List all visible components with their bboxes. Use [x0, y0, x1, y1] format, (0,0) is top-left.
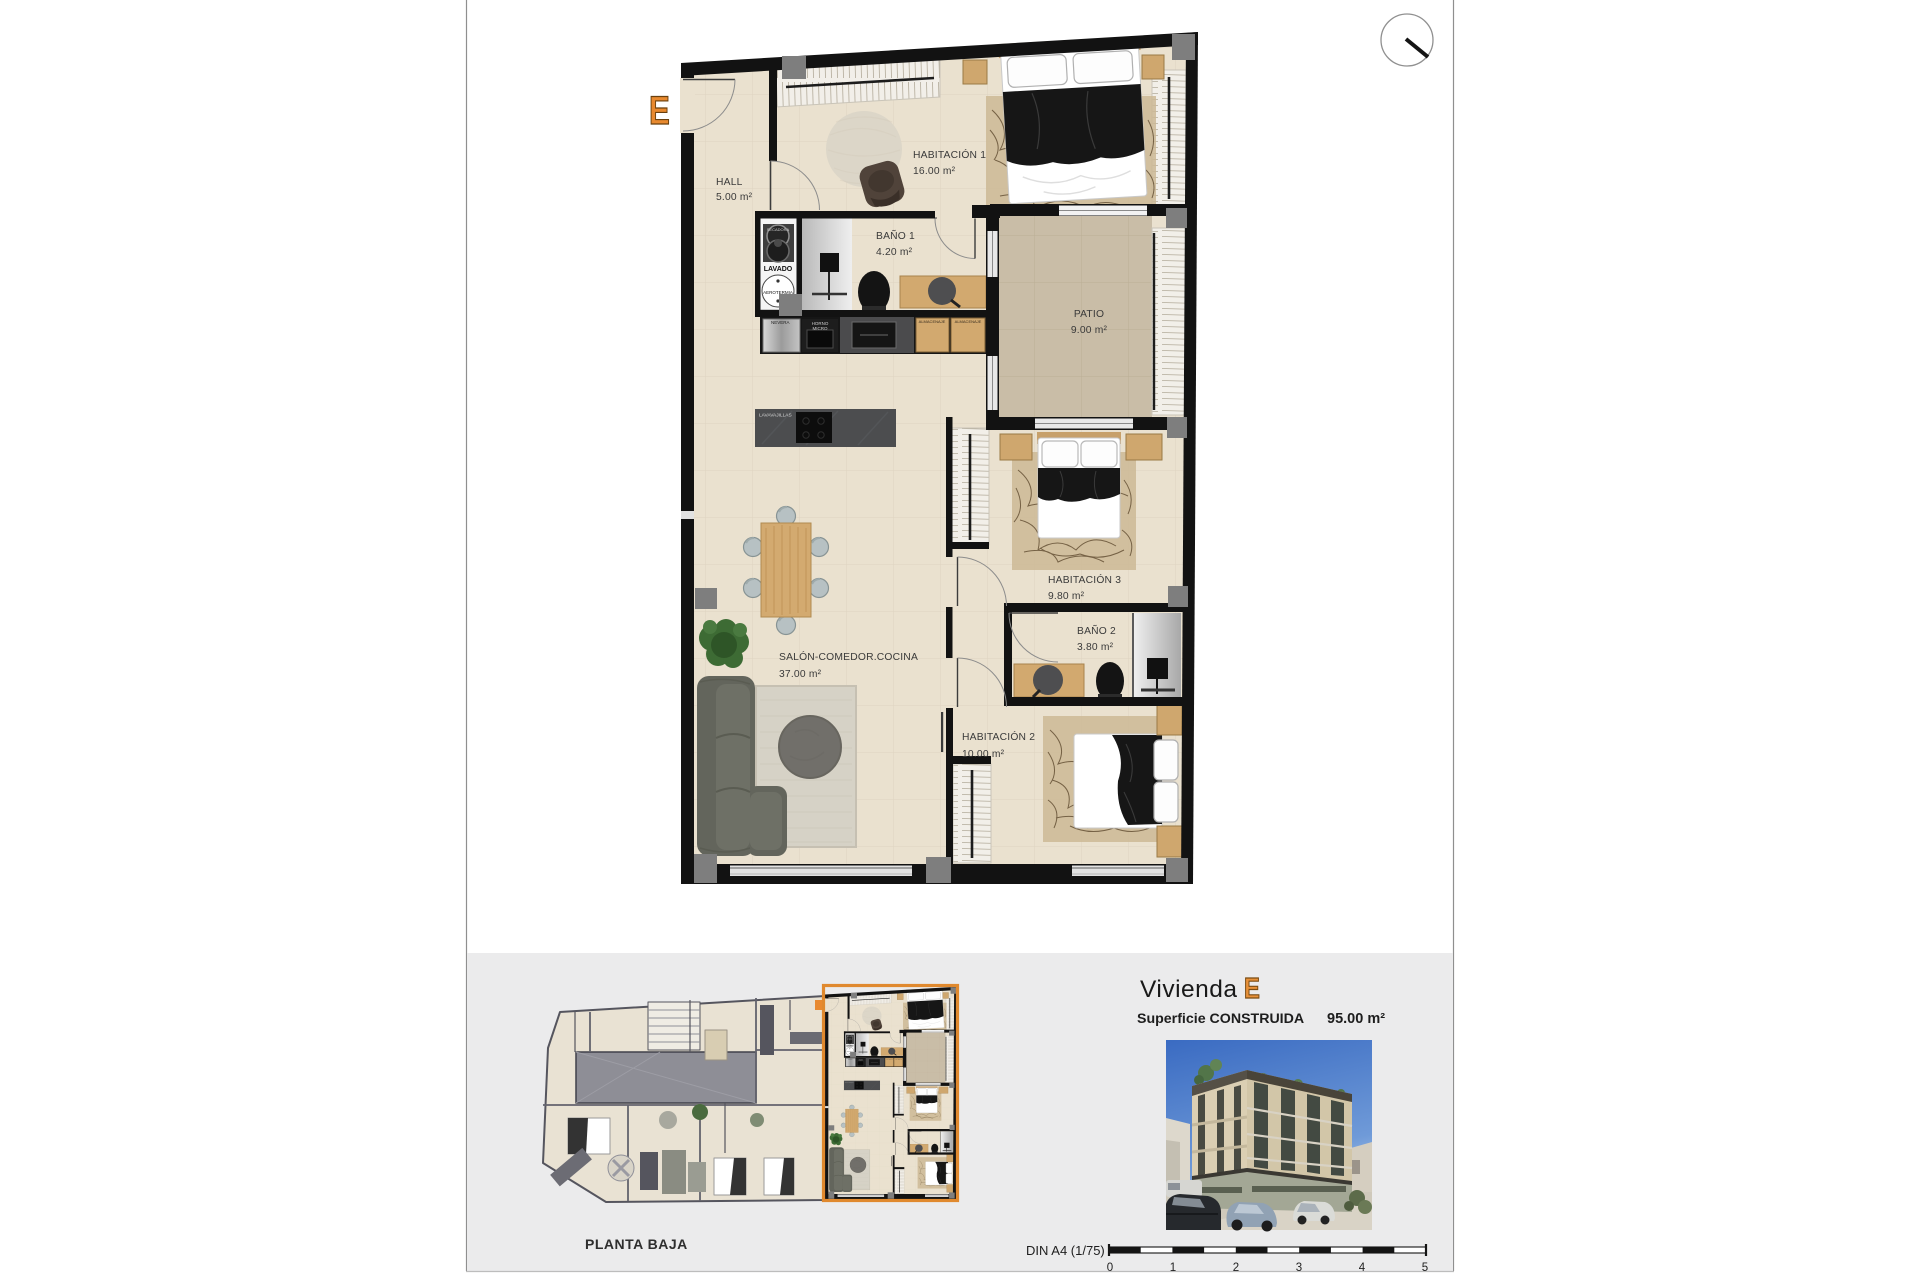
- svg-text:3.80 m²: 3.80 m²: [1077, 642, 1114, 653]
- svg-text:MICRO: MICRO: [813, 326, 828, 331]
- svg-text:HABITACIÓN 1: HABITACIÓN 1: [913, 148, 986, 161]
- svg-text:LAVADO: LAVADO: [764, 266, 793, 273]
- svg-text:5.00 m²: 5.00 m²: [716, 192, 753, 203]
- svg-text:9.80 m²: 9.80 m²: [1048, 591, 1085, 602]
- svg-text:SECADORA: SECADORA: [767, 227, 790, 232]
- svg-text:LAVAVAJILLAS: LAVAVAJILLAS: [759, 413, 792, 419]
- svg-text:5: 5: [1422, 1262, 1428, 1274]
- svg-text:ALMACENAJE: ALMACENAJE: [919, 319, 946, 324]
- svg-text:ALMACENAJE: ALMACENAJE: [955, 319, 982, 324]
- svg-text:0: 0: [1107, 1262, 1113, 1274]
- svg-text:4: 4: [1359, 1262, 1366, 1274]
- svg-text:95.00 m²: 95.00 m²: [1327, 1011, 1385, 1027]
- svg-text:SALÓN-COMEDOR.COCINA: SALÓN-COMEDOR.COCINA: [779, 650, 918, 663]
- svg-text:PLANTA BAJA: PLANTA BAJA: [585, 1236, 688, 1252]
- svg-text:Vivienda: Vivienda: [1140, 976, 1238, 1003]
- svg-text:16.00 m²: 16.00 m²: [913, 166, 956, 177]
- svg-text:37.00 m²: 37.00 m²: [779, 669, 822, 680]
- svg-text:2: 2: [1233, 1262, 1239, 1274]
- svg-text:HALL: HALL: [716, 177, 743, 188]
- svg-text:E: E: [1244, 972, 1260, 1005]
- svg-text:NEVERA: NEVERA: [771, 320, 790, 325]
- svg-text:9.00 m²: 9.00 m²: [1071, 325, 1108, 336]
- svg-text:E: E: [649, 88, 670, 133]
- svg-text:HABITACIÓN 3: HABITACIÓN 3: [1048, 573, 1121, 586]
- svg-text:BAÑO 1: BAÑO 1: [876, 229, 915, 242]
- svg-text:BAÑO 2: BAÑO 2: [1077, 624, 1116, 637]
- svg-text:3: 3: [1296, 1262, 1302, 1274]
- svg-text:10.00 m²: 10.00 m²: [962, 749, 1005, 760]
- svg-text:PATIO: PATIO: [1074, 309, 1104, 320]
- svg-text:4.20 m²: 4.20 m²: [876, 247, 913, 258]
- svg-text:DIN A4 (1/75): DIN A4 (1/75): [1026, 1243, 1105, 1258]
- svg-text:HABITACIÓN 2: HABITACIÓN 2: [962, 730, 1035, 743]
- svg-text:1: 1: [1170, 1262, 1176, 1274]
- svg-text:Superficie CONSTRUIDA: Superficie CONSTRUIDA: [1137, 1011, 1304, 1027]
